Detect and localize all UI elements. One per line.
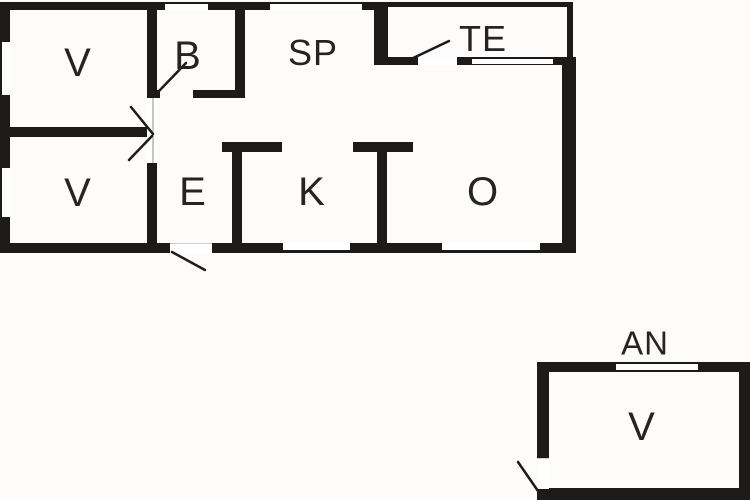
floor-plan-canvas: V B SP TE V E K O AN V [0,0,750,500]
terrace-right-wall [567,2,573,59]
bath-bottom-wall-left [147,90,160,98]
bath-left-wall [147,2,157,98]
room-label-living: O [467,172,499,212]
v2-window [2,168,10,217]
kitchen-living-wall [377,142,387,245]
annex-right-wall [739,362,750,500]
v2-entry-wall [147,163,157,253]
room-label-v1: V [64,43,92,83]
kitchen-window [283,243,350,250]
v1-v2-divider-wall [0,127,150,137]
room-label-bathroom: B [174,36,202,76]
room-label-v2: V [64,173,92,213]
main-right-wall [562,57,576,253]
v1-window [2,42,10,95]
terrace-top-wall [385,2,573,7]
bath-window [165,4,208,10]
living-window [442,243,540,250]
annex-title-label: AN [621,327,669,360]
annex-door-swing-line [518,462,538,491]
entry-kitchen-cap-wall [222,142,282,152]
hall-opening-threshold [152,98,154,163]
room-label-terrace: TE [459,21,507,57]
bath-right-wall [235,2,245,98]
annex-window [616,364,698,370]
terrace-door-opening [418,57,457,65]
room-label-kitchen: K [298,172,326,212]
sp-right-wall [374,2,388,65]
terrace-window [472,59,553,64]
room-label-dining: SP [288,35,338,71]
room-label-entry: E [179,172,207,212]
annex-left-wall [537,362,549,458]
entry-door-swing-line [172,252,205,270]
annex-door-opening [537,458,549,489]
annex-bottom-wall [537,488,750,500]
entry-door-opening [170,243,212,254]
bath-bottom-wall-right [193,90,245,98]
entry-kitchen-wall [232,142,242,245]
room-label-annex-v: V [628,407,656,447]
dining-window [270,4,362,10]
